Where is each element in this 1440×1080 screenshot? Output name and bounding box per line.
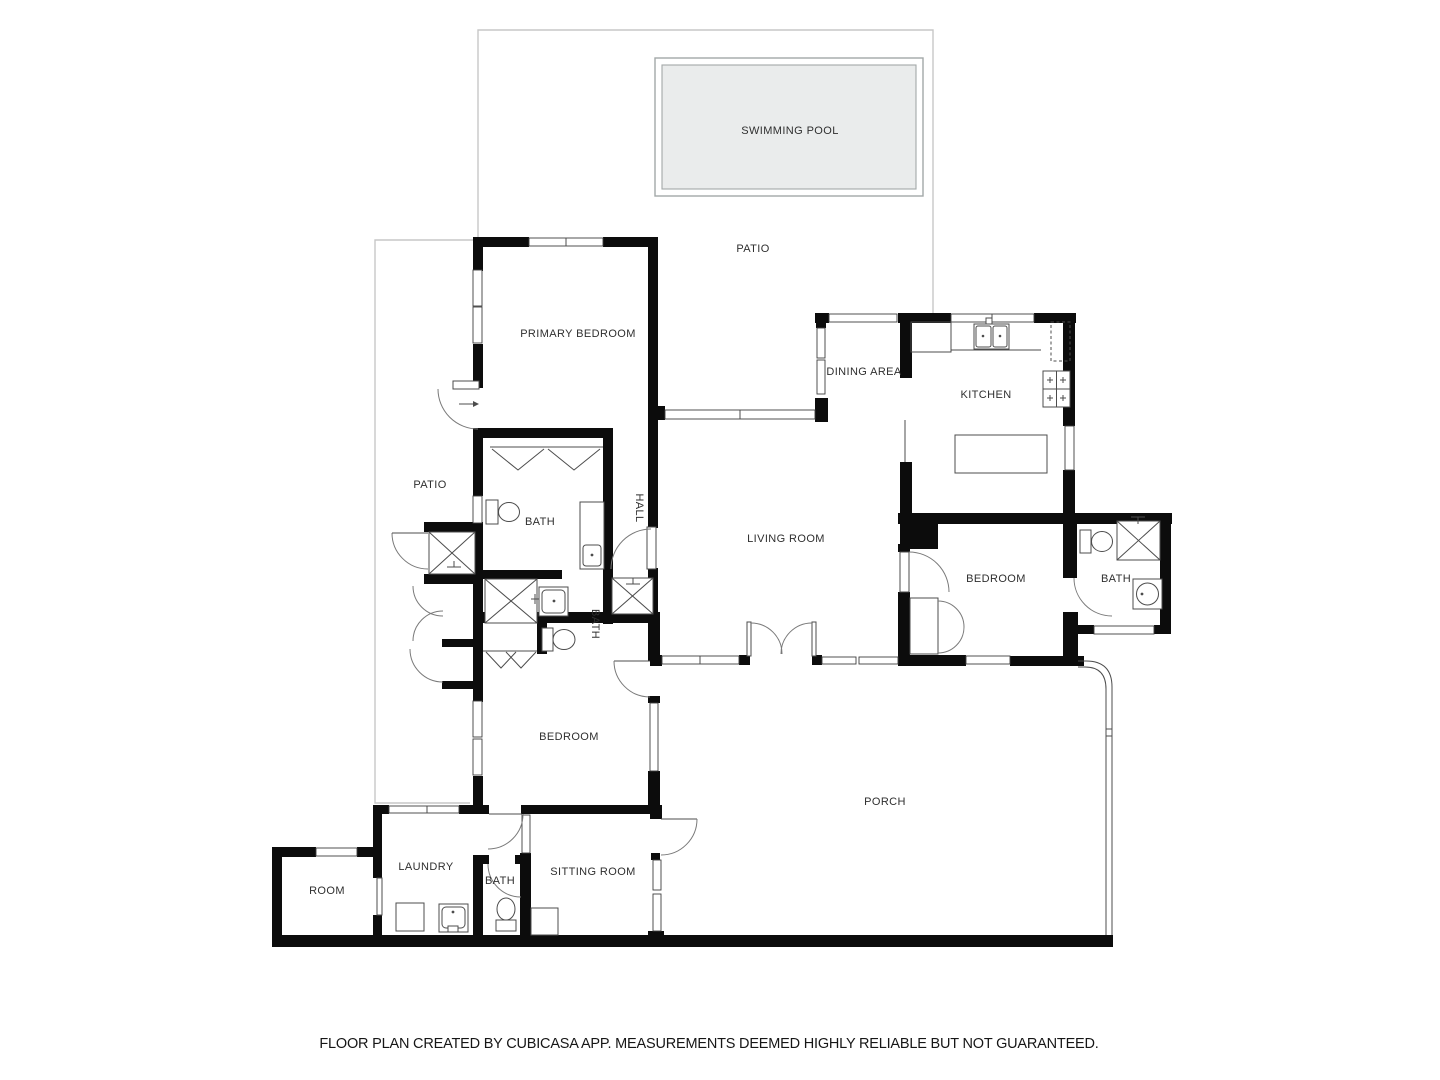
shower-icon bbox=[485, 579, 537, 623]
footer-disclaimer: FLOOR PLAN CREATED BY CUBICASA APP. MEAS… bbox=[319, 1036, 1098, 1052]
primary-bedroom-label: PRIMARY BEDROOM bbox=[520, 328, 636, 340]
bath-right-label: BATH bbox=[1101, 573, 1131, 585]
dining-area-label: DINING AREA bbox=[826, 366, 902, 378]
windows bbox=[316, 238, 1154, 931]
living-room-label: LIVING ROOM bbox=[747, 533, 825, 545]
middle-bath-label: BATH bbox=[589, 609, 601, 639]
primary-bath-label: BATH bbox=[525, 516, 555, 528]
bedroom-right-label: BEDROOM bbox=[966, 573, 1026, 585]
room-labels: SWIMMING POOL PATIO PATIO PRIMARY BEDROO… bbox=[309, 125, 1131, 897]
patio-left-label: PATIO bbox=[413, 479, 446, 491]
room-label: ROOM bbox=[309, 885, 345, 897]
swimming-pool-label: SWIMMING POOL bbox=[741, 125, 838, 137]
kitchen-label: KITCHEN bbox=[960, 389, 1011, 401]
right-bath-fixtures bbox=[1080, 517, 1162, 609]
sitting-room-label: SITTING ROOM bbox=[550, 866, 635, 878]
hall-shower-icon bbox=[612, 578, 653, 614]
porch-screen bbox=[1078, 661, 1112, 935]
porch-label: PORCH bbox=[864, 796, 906, 808]
hall-label: HALL bbox=[633, 493, 645, 522]
bath-bottom-label: BATH bbox=[485, 875, 515, 887]
outdoor-shower-icon bbox=[429, 532, 475, 574]
floor-plan-page: SWIMMING POOL PATIO PATIO PRIMARY BEDROO… bbox=[0, 0, 1440, 1080]
patio-top-label: PATIO bbox=[736, 243, 769, 255]
laundry-label: LAUNDRY bbox=[398, 861, 453, 873]
walls bbox=[272, 237, 1172, 947]
floor-plan-canvas: SWIMMING POOL PATIO PATIO PRIMARY BEDROO… bbox=[0, 0, 1440, 1080]
stove-icon bbox=[1043, 371, 1070, 407]
doors bbox=[377, 381, 1112, 915]
bedroom-bottom-label: BEDROOM bbox=[539, 731, 599, 743]
